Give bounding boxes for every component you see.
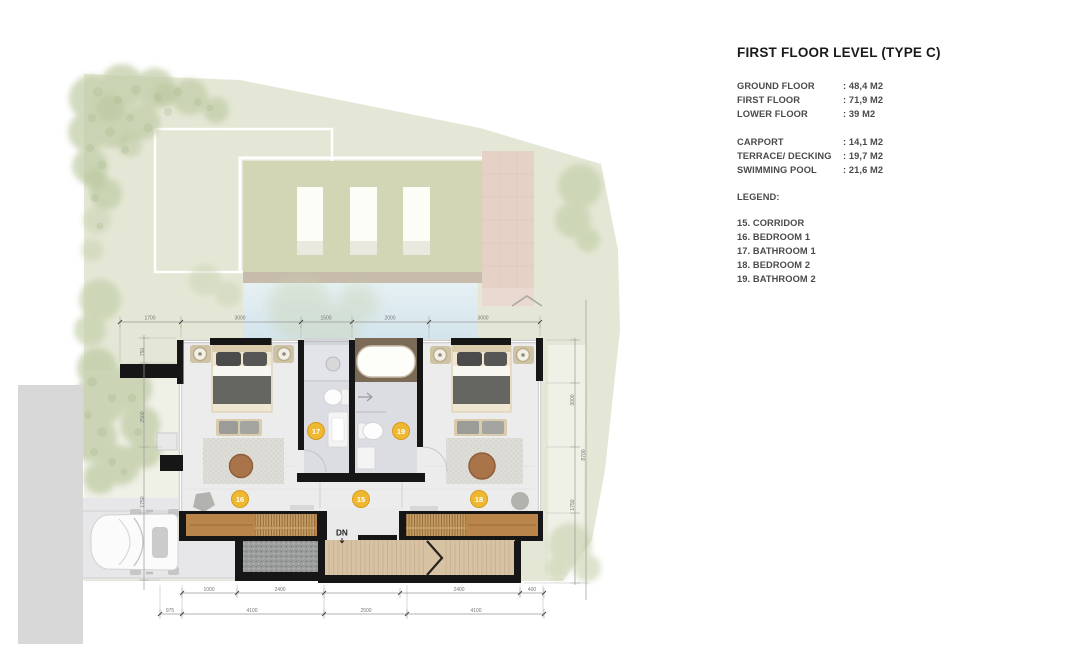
svg-text:1500: 1500 (320, 316, 331, 322)
svg-text:4100: 4100 (470, 608, 481, 614)
svg-text:19: 19 (397, 427, 405, 436)
svg-text:1750: 1750 (570, 499, 576, 510)
svg-text:19. BATHROOM 2: 19. BATHROOM 2 (737, 274, 816, 284)
svg-text:1700: 1700 (144, 316, 155, 322)
svg-text:: 21,6 M2: : 21,6 M2 (843, 165, 883, 175)
svg-text:2400: 2400 (453, 587, 464, 593)
svg-text:2000: 2000 (384, 316, 395, 322)
svg-text:18: 18 (475, 495, 483, 504)
svg-text:LEGEND:: LEGEND: (737, 192, 780, 202)
svg-text:4100: 4100 (246, 608, 257, 614)
svg-text:: 39 M2: : 39 M2 (843, 109, 875, 119)
svg-text:400: 400 (528, 587, 537, 593)
svg-text:18. BEDROOM 2: 18. BEDROOM 2 (737, 260, 810, 270)
svg-text:1000: 1000 (203, 587, 214, 593)
svg-text:17: 17 (312, 427, 320, 436)
svg-text:750: 750 (140, 348, 146, 357)
svg-text:17. BATHROOM 1: 17. BATHROOM 1 (737, 246, 816, 256)
svg-text:3000: 3000 (570, 394, 576, 405)
svg-text:: 14,1 M2: : 14,1 M2 (843, 137, 883, 147)
svg-text:8700: 8700 (581, 449, 587, 460)
svg-text:: 19,7 M2: : 19,7 M2 (843, 151, 883, 161)
svg-text:1750: 1750 (140, 496, 146, 507)
svg-text:DN: DN (336, 529, 348, 538)
svg-text:2500: 2500 (360, 608, 371, 614)
svg-text:2500: 2500 (140, 411, 146, 422)
svg-text:LOWER FLOOR: LOWER FLOOR (737, 109, 808, 119)
svg-text:FIRST FLOOR: FIRST FLOOR (737, 95, 800, 105)
svg-text:3000: 3000 (234, 316, 245, 322)
svg-text:15: 15 (357, 495, 365, 504)
svg-text:: 71,9 M2: : 71,9 M2 (843, 95, 883, 105)
svg-text:SWIMMING POOL: SWIMMING POOL (737, 165, 817, 175)
svg-text:15. CORRIDOR: 15. CORRIDOR (737, 218, 805, 228)
svg-text:16. BEDROOM 1: 16. BEDROOM 1 (737, 232, 810, 242)
svg-text:FIRST FLOOR LEVEL (TYPE C): FIRST FLOOR LEVEL (TYPE C) (737, 45, 941, 60)
svg-text:16: 16 (236, 495, 244, 504)
svg-text:975: 975 (166, 608, 175, 614)
svg-text:3000: 3000 (477, 316, 488, 322)
svg-text:GROUND FLOOR: GROUND FLOOR (737, 81, 815, 91)
svg-text:: 48,4 M2: : 48,4 M2 (843, 81, 883, 91)
svg-text:2400: 2400 (274, 587, 285, 593)
svg-text:CARPORT: CARPORT (737, 137, 784, 147)
svg-text:TERRACE/ DECKING: TERRACE/ DECKING (737, 151, 832, 161)
